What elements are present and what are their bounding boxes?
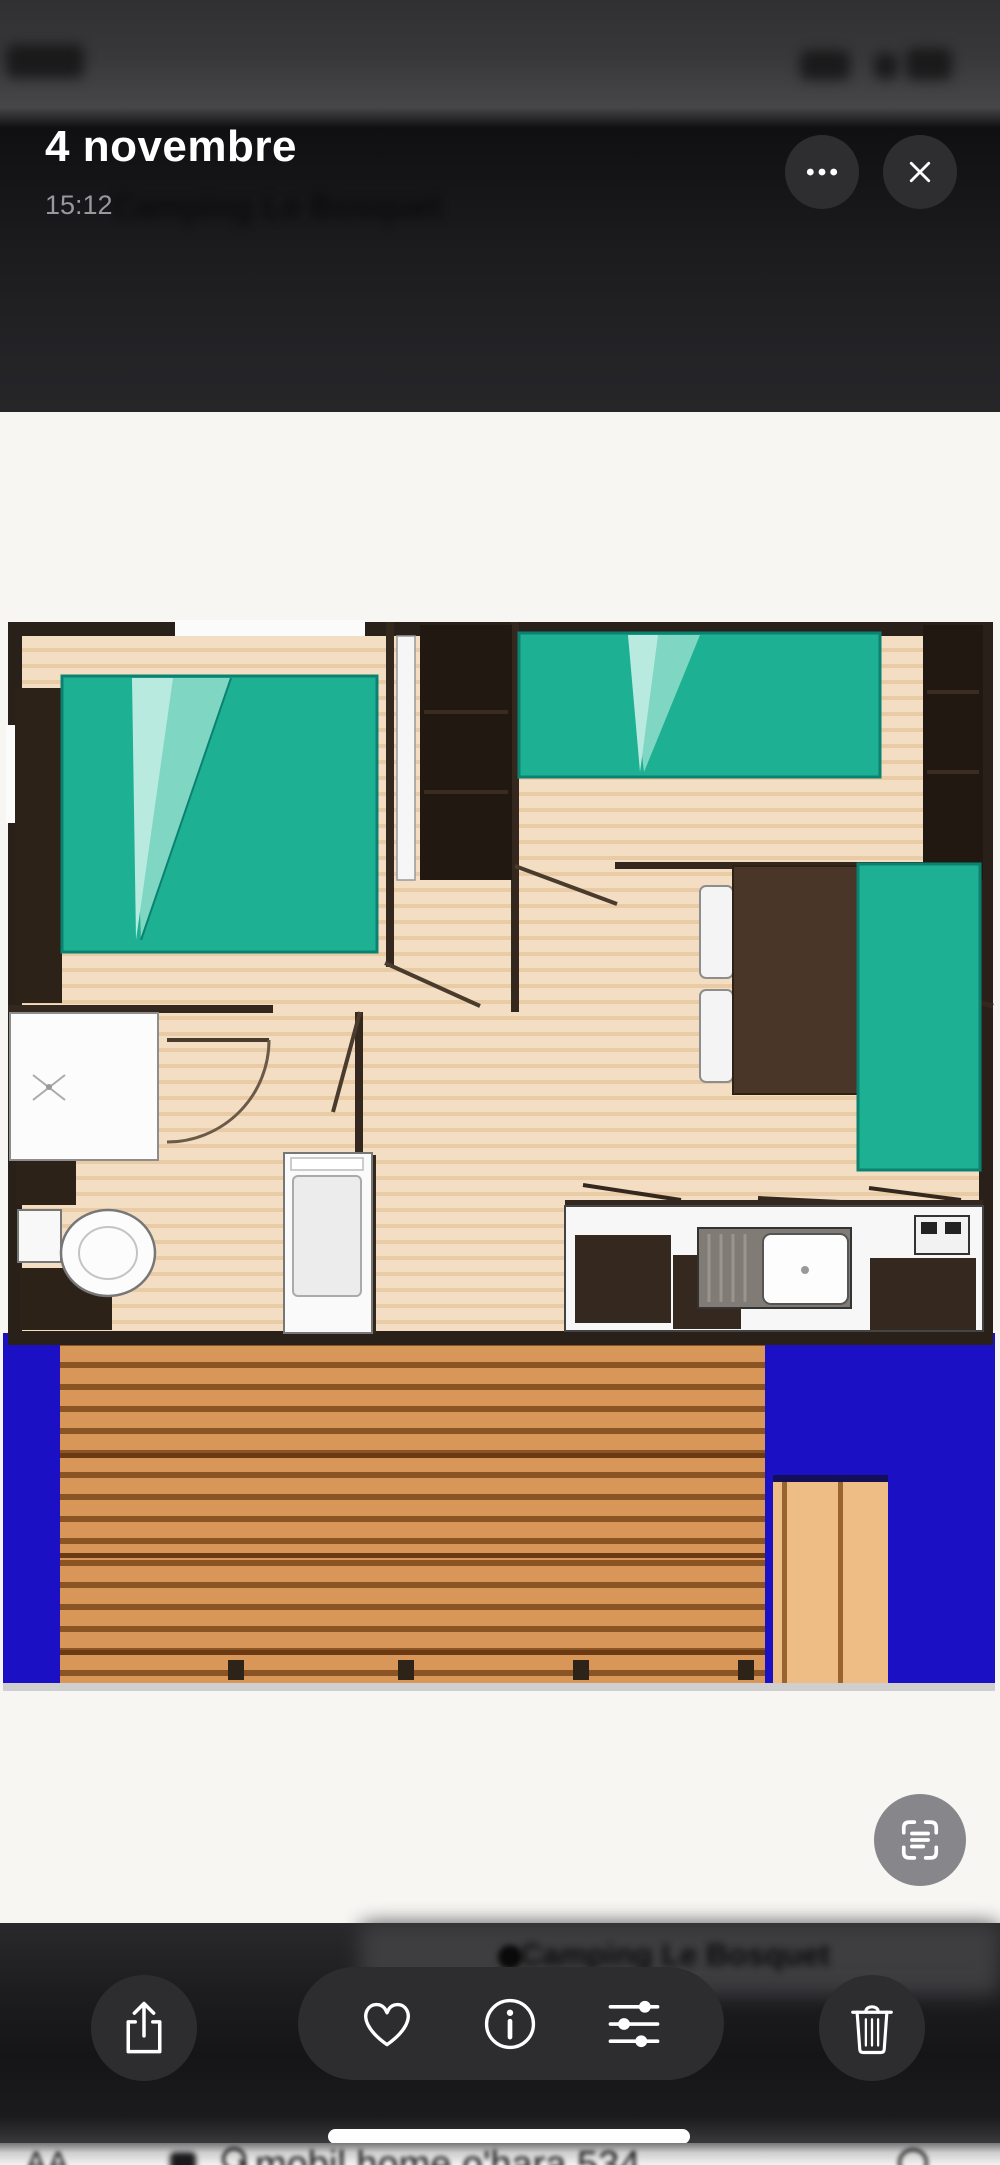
live-text-icon: [894, 1814, 946, 1866]
blurred-site-name: Camping Le Bosquet: [112, 188, 442, 226]
share-button[interactable]: [91, 1975, 197, 2081]
refresh-icon: [898, 2148, 928, 2165]
photo-time: 15:12: [45, 190, 113, 221]
top-overlay: Camping Le Bosquet 4 novembre 15:12: [0, 0, 1000, 412]
close-button[interactable]: [883, 135, 957, 209]
blurred-tab-icon: [170, 2152, 196, 2165]
favorite-button[interactable]: [357, 1994, 417, 2054]
heart-icon: [357, 1994, 417, 2054]
adjustments-icon: [603, 1995, 665, 2053]
bottom-toolbar: Camping Le Bosquet: [0, 1923, 1000, 2165]
live-text-button[interactable]: [874, 1794, 966, 1886]
info-button[interactable]: [480, 1994, 540, 2054]
blurred-battery-icon: [906, 48, 952, 80]
ellipsis-icon: [800, 150, 844, 194]
toolbar-pill: [298, 1967, 724, 2080]
info-icon: [480, 1994, 540, 2054]
photos-app-screen: Camping Le Bosquet 4 novembre 15:12: [0, 0, 1000, 2165]
blurred-status-time: [6, 44, 84, 78]
more-button[interactable]: [785, 135, 859, 209]
floorplan-kitchen: [565, 1185, 983, 1331]
home-indicator[interactable]: [328, 2129, 690, 2144]
photo-viewer[interactable]: [0, 412, 1000, 1923]
floorplan-image[interactable]: [3, 620, 997, 1698]
x-icon: [900, 152, 940, 192]
floorplan-window-top: [175, 620, 365, 636]
floorplan-terrace: [3, 1333, 995, 1691]
blurred-signal-icon: [800, 50, 850, 80]
safari-search-text: mobil home o'hara 534: [255, 2144, 640, 2165]
photo-date-title: 4 novembre: [45, 122, 297, 172]
adjust-button[interactable]: [603, 1995, 665, 2053]
share-icon: [116, 1997, 172, 2059]
reader-aa-button: AA: [26, 2146, 70, 2165]
blurred-wifi-icon: [874, 53, 898, 79]
trash-icon: [844, 1998, 900, 2058]
blurred-safari-bar: AA mobil home o'hara 534: [0, 2143, 1000, 2165]
delete-button[interactable]: [819, 1975, 925, 2081]
